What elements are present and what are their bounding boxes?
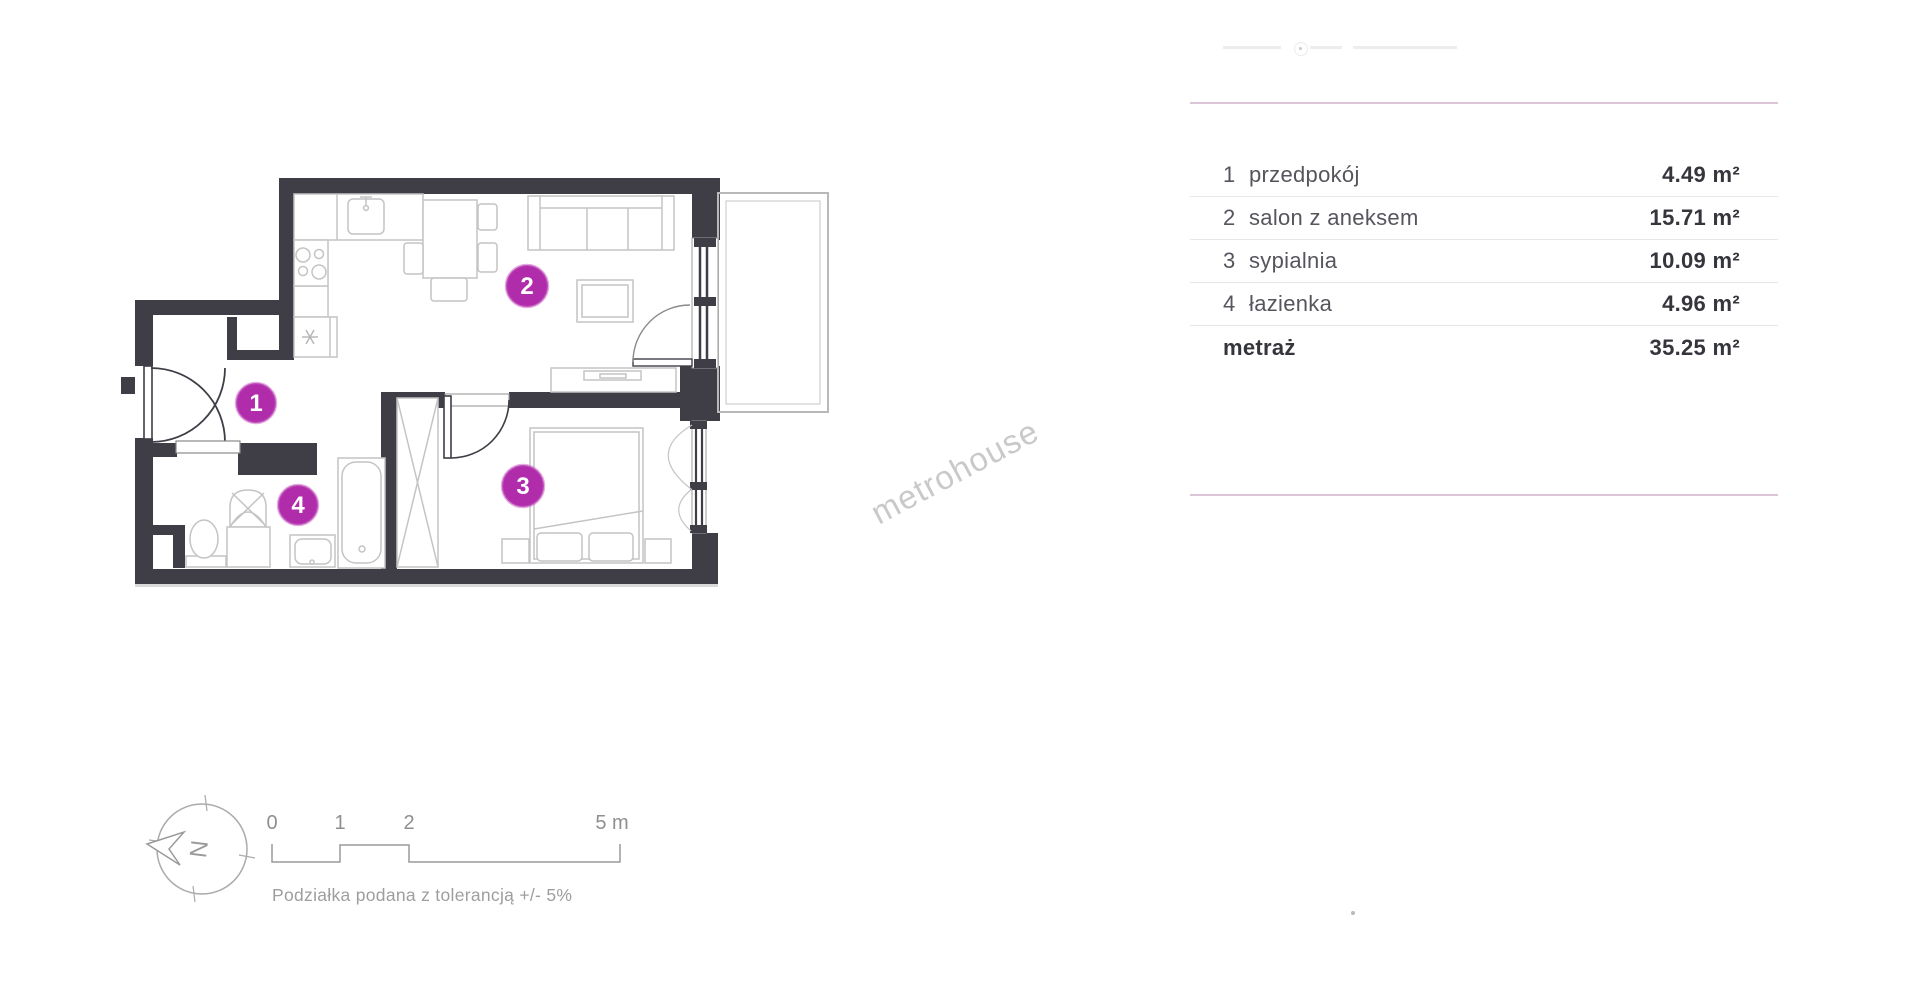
area-row-przedpokoj: 1 przedpokój 4.49 m² [1190,154,1778,197]
balcony-door-leaf [633,359,692,366]
room-number: 4 [1223,291,1249,317]
wall-entry-nub [121,377,135,394]
wall-pier-mid-right [680,366,720,421]
stove [294,240,328,286]
balcony-outer [718,193,828,412]
sofa [528,196,674,250]
floorplan-page: 1 2 3 4 metrohouse N 0 1 [0,0,1920,983]
badge-room-2: 2 [506,265,548,307]
area-row-total: metraż 35.25 m² [1190,326,1778,369]
room-number: 1 [1223,162,1249,188]
entry-door-arc-1 [151,368,225,442]
window-living [692,238,718,368]
room-name: łazienka [1249,291,1332,317]
bedroom-door [444,394,509,458]
toilet [186,520,226,567]
wall-pier-top-right [692,178,720,240]
logo-remnant-dot [1299,47,1302,50]
nightstand-left [502,539,529,563]
wall-top [279,178,720,194]
bedroom-door-arc [451,400,509,458]
scale-label-5m: 5 m [595,812,628,834]
wall-left-upper [135,300,153,366]
wardrobe [397,398,438,567]
scale-bar-line [272,844,620,862]
wall-corner-bottom-right [692,533,718,573]
coffee-table [577,280,633,322]
entry-door [144,366,225,442]
badge-room-1: 1 [236,383,276,423]
area-row-sypialnia: 3 sypialnia 10.09 m² [1190,240,1778,283]
area-row-salon: 2 salon z aneksem 15.71 m² [1190,197,1778,240]
wall-hall-north [135,300,281,315]
kitchen-sink [348,197,384,234]
casement-swing-arcs [668,425,692,531]
room-number: 3 [1223,248,1249,274]
scale-label-2: 2 [403,812,414,834]
wall-living-bedroom-b [509,392,680,408]
watermark: metrohouse [865,412,1045,531]
room-area: 15.71 m² [1650,205,1740,231]
room-area: 10.09 m² [1650,248,1740,274]
wall-kitchen-west [279,178,294,360]
bedroom-door-sill [445,394,509,406]
wall-bath-pocket-h [150,525,185,535]
total-area: 35.25 m² [1650,335,1740,361]
north-arrow-icon [147,832,184,865]
nightstand-right [645,539,671,563]
room-name: salon z aneksem [1249,205,1419,231]
bathroom-door-sill [176,441,240,453]
fridge [294,317,337,357]
washbasin [227,490,270,567]
washing-machine [290,535,335,567]
logo-remnant-bar-2 [1310,46,1342,49]
wall-bath-pocket-v [173,535,185,568]
area-table: 1 przedpokój 4.49 m² 2 salon z aneksem 1… [1190,102,1778,496]
total-label: metraż [1223,335,1296,361]
badge-room-3: 3 [502,465,544,507]
wall-bottom-shadow [135,584,718,587]
scale-label-1: 1 [334,812,345,834]
area-row-lazienka: 4 łazienka 4.96 m² [1190,283,1778,326]
wall-bottom [135,569,718,584]
room-area: 4.49 m² [1662,162,1740,188]
scale-label-0: 0 [266,812,277,834]
scale-bar: 0 1 2 5 m Podziałka podana z tolerancją … [266,812,628,905]
badge-room-3-label: 3 [516,473,529,500]
wall-bath-stub [238,443,317,475]
room-name: przedpokój [1249,162,1360,188]
balcony [718,193,828,412]
bedroom-door-leaf [444,396,451,458]
scale-caption: Podziałka podana z tolerancją +/- 5% [272,885,572,905]
furniture [186,194,692,568]
compass-north-letter: N [185,839,214,860]
bed [530,428,643,563]
balcony-inner [726,201,820,404]
wall-bath-left [135,443,177,457]
wall-shaft-bottom [227,350,279,360]
entry-door-leaf [144,366,152,439]
room-number: 2 [1223,205,1249,231]
window-bedroom [690,421,707,533]
bathroom-door [176,441,240,453]
logo-remnant-bar-1 [1223,46,1281,49]
stray-mark [1351,911,1355,915]
bathtub [338,458,385,568]
badge-room-4-label: 4 [291,492,305,519]
logo-remnant-bar-3 [1353,46,1457,49]
balcony-door-arc [633,305,690,362]
badge-room-4: 4 [278,485,318,525]
room-area: 4.96 m² [1662,291,1740,317]
room-name: sypialnia [1249,248,1337,274]
badge-room-2-label: 2 [520,273,533,300]
tv-cabinet [551,368,676,392]
badge-room-1-label: 1 [249,390,262,417]
balcony-door [633,305,692,366]
wall-left-lower [135,438,153,584]
entry-door-arc-2 [151,368,225,442]
compass: N [147,795,255,902]
